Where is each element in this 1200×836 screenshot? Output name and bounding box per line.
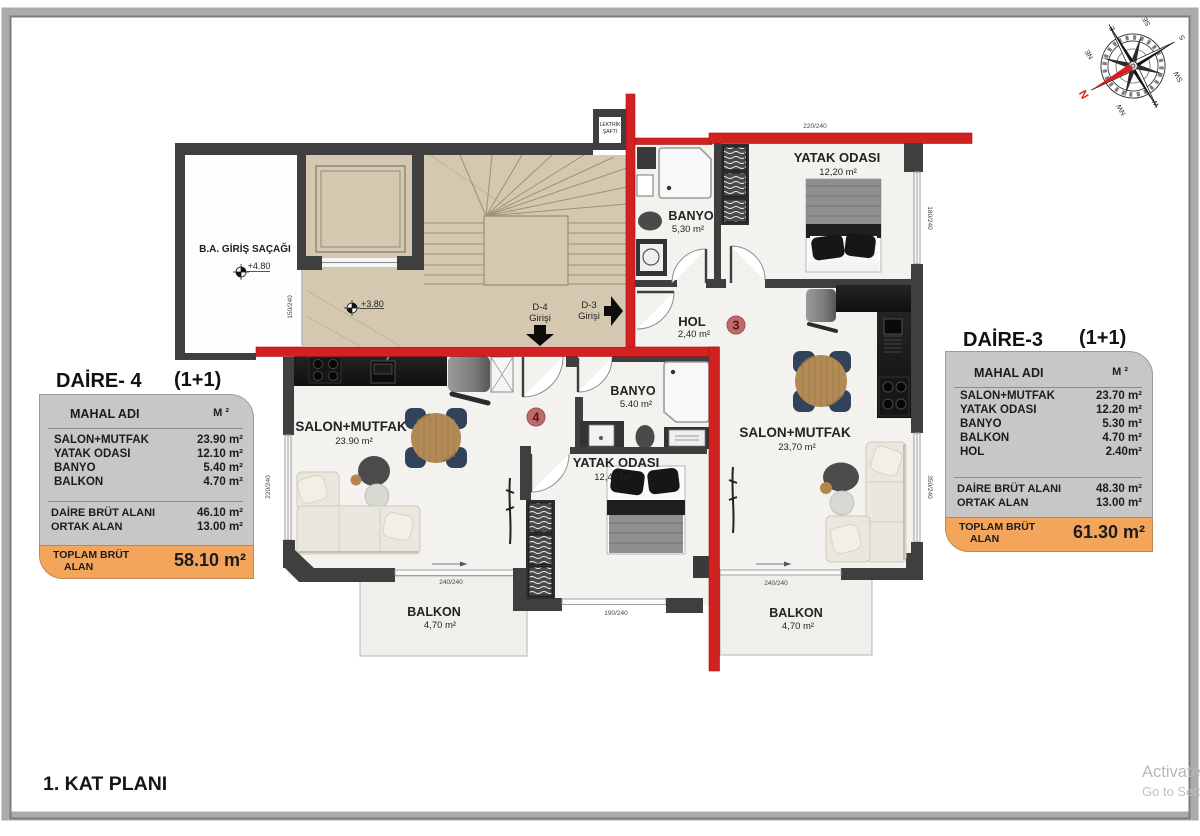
svg-text:+3.80: +3.80 <box>361 299 384 309</box>
svg-text:23.90 m²: 23.90 m² <box>335 436 373 447</box>
svg-text:12,40 m²: 12,40 m² <box>594 472 632 483</box>
svg-text:BANYO: BANYO <box>668 209 713 223</box>
svg-text:BANYO: BANYO <box>610 384 655 398</box>
svg-text:2,40 m²: 2,40 m² <box>678 329 710 340</box>
svg-text:4: 4 <box>533 411 540 425</box>
svg-text:5,30 m²: 5,30 m² <box>672 224 704 235</box>
svg-text:D-4: D-4 <box>532 302 547 313</box>
svg-text:SALON+MUTFAK: SALON+MUTFAK <box>295 419 407 434</box>
svg-text:220/240: 220/240 <box>265 475 272 499</box>
svg-text:150/240: 150/240 <box>287 295 294 319</box>
svg-text:5.40 m²: 5.40 m² <box>620 399 652 410</box>
svg-text:Girişi: Girişi <box>578 311 600 322</box>
svg-text:Girişi: Girişi <box>529 313 551 324</box>
svg-text:3: 3 <box>733 319 740 333</box>
svg-text:ŞAFTI: ŞAFTI <box>603 129 617 135</box>
svg-text:LEKTRİK: LEKTRİK <box>600 121 622 128</box>
svg-text:190/240: 190/240 <box>604 610 628 617</box>
svg-text:220/240: 220/240 <box>803 123 827 130</box>
svg-text:BALKON: BALKON <box>769 606 822 620</box>
svg-text:YATAK ODASI: YATAK ODASI <box>794 150 880 165</box>
svg-text:SALON+MUTFAK: SALON+MUTFAK <box>739 425 851 440</box>
svg-text:BALKON: BALKON <box>407 605 460 619</box>
svg-text:YATAK ODASI: YATAK ODASI <box>573 455 659 470</box>
svg-text:240/240: 240/240 <box>764 580 788 587</box>
svg-text:350/240: 350/240 <box>926 475 933 499</box>
svg-text:+4.80: +4.80 <box>248 261 271 271</box>
svg-text:23,70 m²: 23,70 m² <box>778 442 816 453</box>
svg-text:12,20 m²: 12,20 m² <box>819 167 857 178</box>
svg-text:180/240: 180/240 <box>926 206 933 230</box>
svg-text:4,70 m²: 4,70 m² <box>782 621 814 632</box>
svg-text:HOL: HOL <box>678 314 706 329</box>
svg-text:B.A. GİRİŞ SAÇAĞI: B.A. GİRİŞ SAÇAĞI <box>199 242 291 255</box>
svg-text:240/240: 240/240 <box>439 579 463 586</box>
svg-text:D-3: D-3 <box>581 300 596 311</box>
svg-text:4,70 m²: 4,70 m² <box>424 620 456 631</box>
